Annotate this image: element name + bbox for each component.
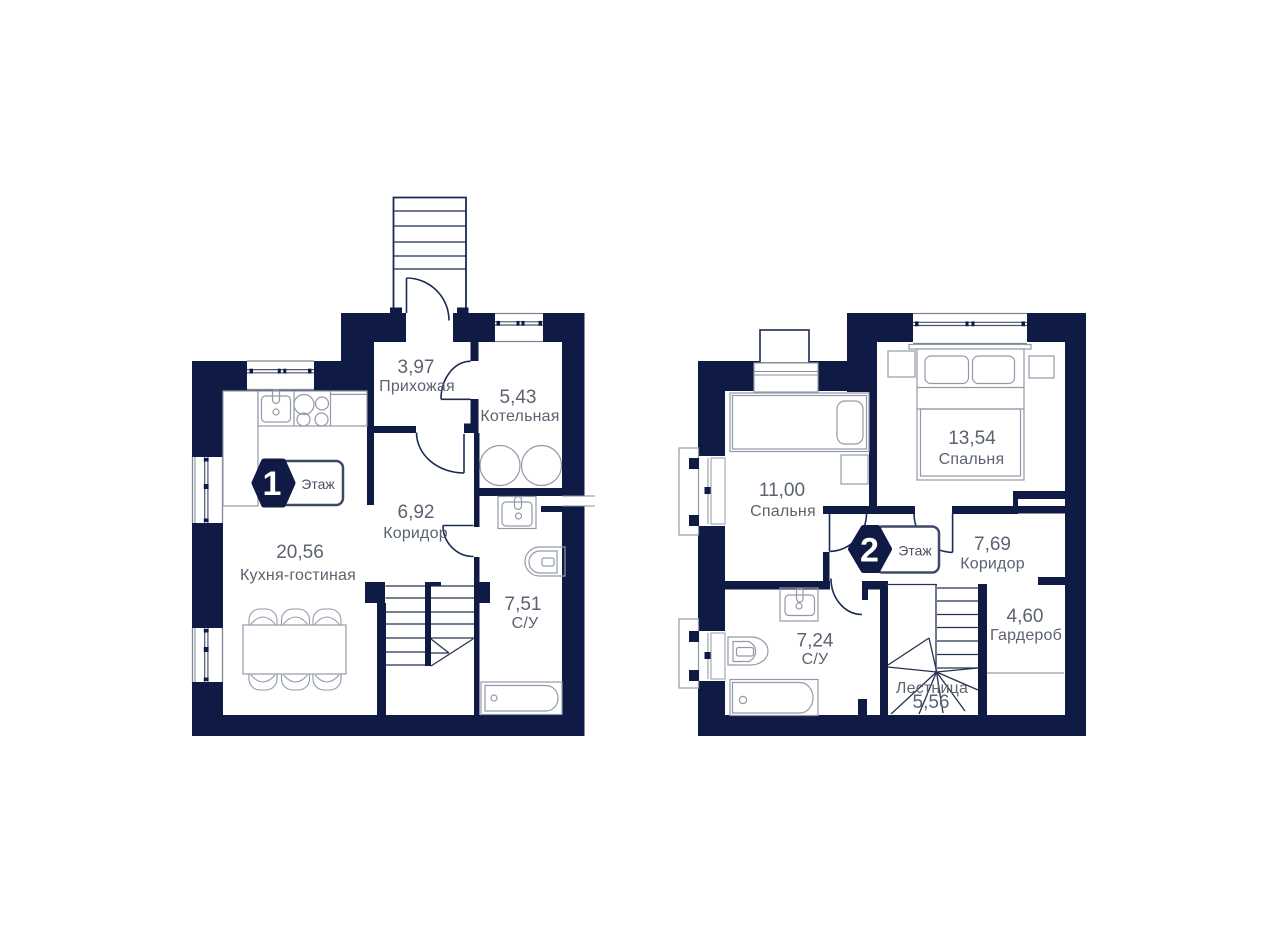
svg-text:6,92: 6,92 <box>398 502 435 523</box>
svg-text:4,60: 4,60 <box>1007 606 1044 627</box>
svg-text:Спальня: Спальня <box>750 503 816 520</box>
svg-text:13,54: 13,54 <box>948 428 996 449</box>
svg-text:1: 1 <box>263 465 282 503</box>
svg-text:Гардероб: Гардероб <box>990 627 1062 644</box>
svg-text:5,56: 5,56 <box>913 692 950 713</box>
svg-text:Этаж: Этаж <box>301 476 335 492</box>
svg-text:Кухня-гостиная: Кухня-гостиная <box>240 567 356 584</box>
svg-text:7,69: 7,69 <box>974 534 1011 555</box>
svg-text:Прихожая: Прихожая <box>379 378 455 395</box>
svg-text:11,00: 11,00 <box>759 480 805 501</box>
svg-text:С/У: С/У <box>802 651 829 668</box>
svg-text:Котельная: Котельная <box>480 408 559 425</box>
svg-text:Коридор: Коридор <box>383 525 448 542</box>
svg-text:5,43: 5,43 <box>500 387 537 408</box>
svg-text:Спальня: Спальня <box>939 451 1005 468</box>
svg-text:2: 2 <box>860 532 879 570</box>
svg-text:Этаж: Этаж <box>898 543 932 559</box>
svg-text:7,24: 7,24 <box>797 631 834 652</box>
svg-text:С/У: С/У <box>512 615 539 632</box>
svg-text:Коридор: Коридор <box>960 556 1025 573</box>
svg-text:20,56: 20,56 <box>276 542 324 563</box>
svg-text:7,51: 7,51 <box>505 594 542 615</box>
svg-text:3,97: 3,97 <box>398 357 435 378</box>
